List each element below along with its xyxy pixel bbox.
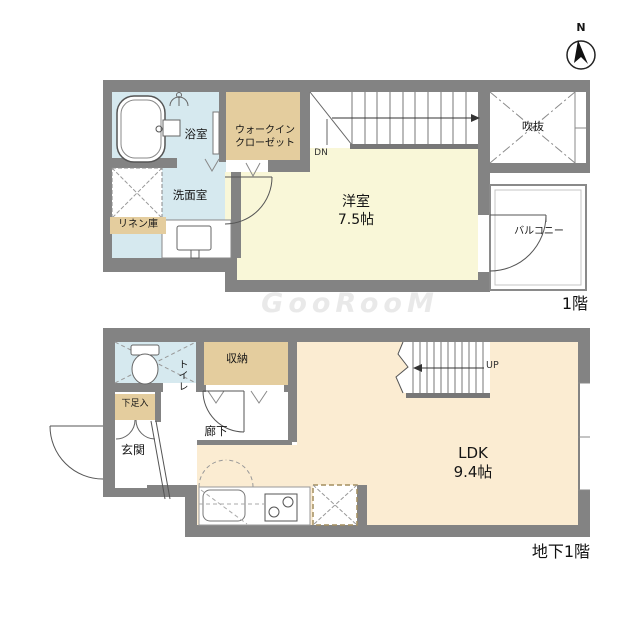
shoe-box-label: 下足入 [113, 399, 157, 409]
hallway-label: 廊下 [183, 425, 249, 438]
bathroom-label: 浴室 [166, 128, 226, 141]
stairs-up-label: UP [486, 361, 516, 372]
bedroom-name-label: 洋室 [306, 194, 406, 210]
bathtub [117, 96, 165, 162]
bedroom-size-label: 7.5帖 [306, 212, 406, 228]
floor1-plan [103, 80, 590, 292]
kitchen-sink [203, 490, 245, 521]
floorplan-canvas: N GooRooM 浴室 ウォークイン クローゼット 洗面室 リネン庫 DN 洋… [0, 0, 640, 640]
washroom-label: 洗面室 [157, 189, 223, 202]
ldk-size-label: 9.4帖 [423, 464, 523, 481]
basement-plan [50, 328, 590, 537]
balcony-area [490, 185, 586, 290]
walkin-closet-label-line1: ウォークイン [226, 125, 304, 137]
north-compass-icon [567, 40, 595, 69]
linen-closet-label: リネン庫 [110, 219, 166, 231]
floor1-label: 1階 [498, 295, 588, 313]
storage-door-marks [208, 391, 267, 403]
compass-north-label: N [574, 22, 588, 35]
stove [265, 494, 297, 521]
balcony-label: バルコニー [494, 226, 584, 238]
entrance-label: 玄関 [105, 444, 161, 458]
ldk-name-label: LDK [423, 445, 523, 462]
toilet-label: トイレ [171, 344, 186, 406]
storage-label: 収納 [204, 353, 270, 366]
entrance-inner-doors [116, 420, 155, 439]
watermark: GooRooM [210, 288, 490, 324]
stairs-down-label: DN [307, 148, 335, 158]
walkin-closet-label-line2: クローゼット [226, 138, 304, 150]
washbasin [162, 220, 231, 258]
void-label: 吹抜 [502, 121, 564, 134]
refrigerator-space [313, 485, 357, 525]
entrance-step [115, 478, 147, 488]
basement-label: 地下1階 [478, 543, 590, 561]
